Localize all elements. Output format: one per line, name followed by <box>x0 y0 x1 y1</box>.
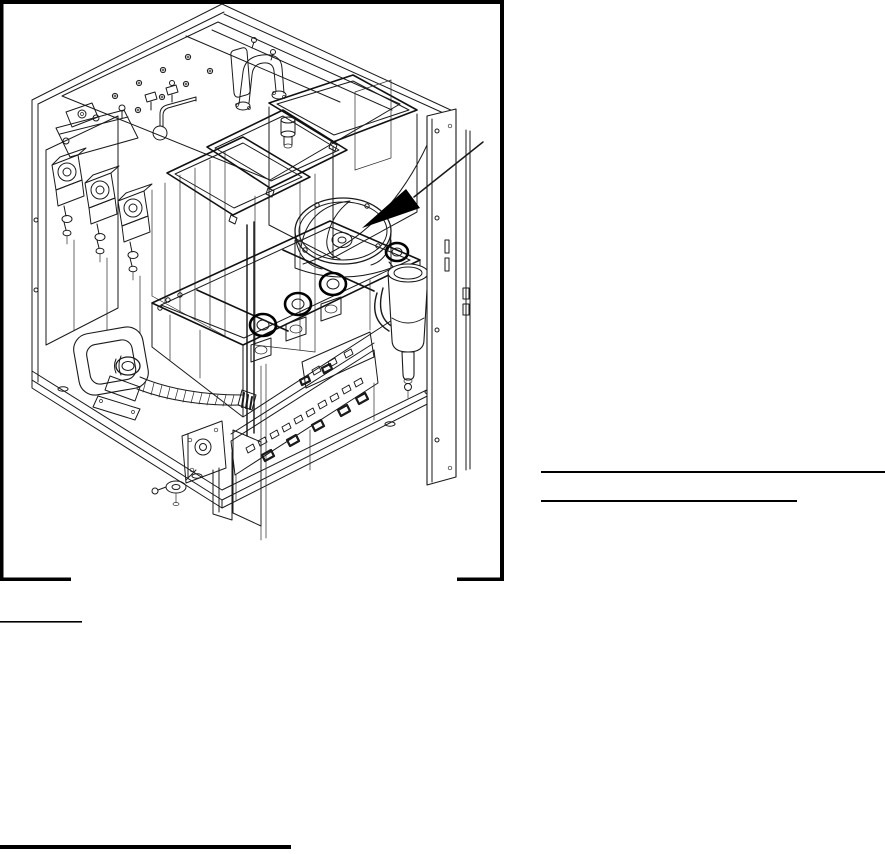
door-panel <box>427 109 470 485</box>
blank-line-note-left <box>0 621 82 623</box>
canister-lids <box>167 75 417 224</box>
valve-unit <box>118 184 152 280</box>
manual-page <box>0 0 885 854</box>
footnote-rule <box>0 845 291 849</box>
machine-drawing <box>32 4 470 540</box>
frame-left <box>0 0 4 581</box>
screw-heads <box>93 54 213 121</box>
frame-bottom-left <box>0 578 71 582</box>
valve-unit <box>85 166 119 262</box>
corrugated-hose <box>137 377 256 410</box>
inlet-valves <box>52 103 152 355</box>
drain-bracket <box>152 421 232 520</box>
blank-line-right-1 <box>541 471 885 473</box>
frame-bottom-right <box>457 578 504 582</box>
pipe-fittings <box>119 81 196 141</box>
frame-top <box>0 0 503 4</box>
valve-unit <box>52 148 86 244</box>
frame-right <box>500 0 504 581</box>
dispenser-funnel <box>375 264 428 398</box>
page-canvas <box>0 0 885 854</box>
lift-handle <box>236 55 287 110</box>
text-rules <box>0 471 885 849</box>
blank-line-right-2 <box>541 500 797 502</box>
